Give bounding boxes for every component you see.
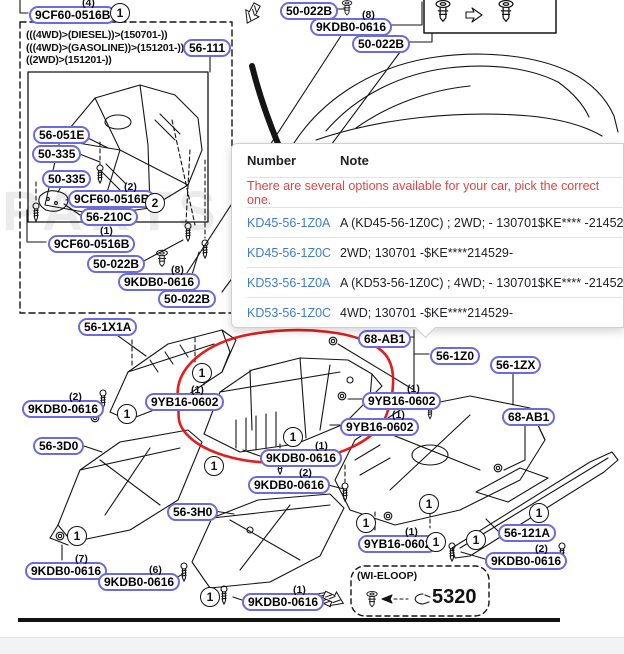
bottom-border-line bbox=[18, 618, 560, 622]
callout-number: 1 bbox=[426, 532, 446, 552]
callout-number: 1 bbox=[192, 363, 212, 383]
part-label[interactable]: 56-1ZX bbox=[490, 356, 541, 374]
part-qty: (8) bbox=[362, 9, 375, 21]
part-qty: (8) bbox=[171, 264, 184, 276]
car-outline-drawing bbox=[252, 54, 618, 146]
part-label[interactable]: 9CF60-0516B bbox=[48, 235, 135, 253]
part-note: A (KD45-56-1Z0C) ; 2WD; - 130701$KE**** … bbox=[340, 216, 623, 230]
screw-icon bbox=[33, 203, 39, 221]
bolt-icon bbox=[384, 512, 392, 520]
part-qty: (1) bbox=[392, 409, 405, 421]
popup-option-row: KD45-56-1Z0C 2WD; 130701 -$KE****214529- bbox=[247, 237, 623, 267]
part-qty: (7) bbox=[75, 553, 88, 565]
part-number-link[interactable]: KD53-56-1Z0A bbox=[247, 276, 330, 290]
popup-warning-row: There are several options available for … bbox=[247, 177, 623, 207]
part-number-link[interactable]: KD45-56-1Z0C bbox=[247, 246, 331, 260]
part-label[interactable]: 50-022B bbox=[87, 255, 145, 273]
callout-number: 2 bbox=[145, 193, 165, 213]
part-label[interactable]: 9KDB0-0616 bbox=[485, 552, 567, 570]
part-qty: (1) bbox=[100, 225, 113, 237]
bolt-icon bbox=[494, 464, 502, 472]
part-qty: (2) bbox=[299, 467, 312, 479]
hatched-arrow-icon bbox=[321, 588, 346, 610]
part-note: 2WD; 130701 -$KE****214529- bbox=[340, 246, 623, 260]
screw-icon bbox=[185, 223, 191, 241]
screw-icon bbox=[221, 586, 227, 604]
callout-number: 1 bbox=[466, 530, 486, 550]
part-label[interactable]: 9KDB0-0616 bbox=[310, 18, 392, 36]
part-label[interactable]: 56-1Z0 bbox=[430, 347, 480, 365]
part-label[interactable]: 56-121A bbox=[498, 524, 556, 542]
variant-conditions: (((4WD)>(DIESEL))>(150701-)) (((4WD)>(GA… bbox=[26, 29, 184, 67]
part-number-link[interactable]: KD53-56-1Z0C bbox=[247, 306, 331, 320]
part-qty: (1) bbox=[191, 384, 204, 396]
clip-icon bbox=[499, 1, 513, 22]
column-header-note: Note bbox=[340, 153, 623, 168]
clip-icon bbox=[342, 1, 352, 15]
part-qty: (2) bbox=[124, 181, 137, 193]
wi-eloop-code: 5320 bbox=[432, 586, 477, 609]
part-label[interactable]: 9CF60-0516B bbox=[68, 190, 155, 208]
screw-icon bbox=[97, 165, 103, 183]
part-qty: (2) bbox=[69, 391, 82, 403]
part-label[interactable]: 50-335 bbox=[32, 145, 81, 163]
part-label[interactable]: 56-051E bbox=[33, 126, 90, 144]
part-label[interactable]: 56-111 bbox=[183, 39, 231, 57]
clip-icon bbox=[367, 591, 377, 606]
parts-diagram-page: PARTS bbox=[0, 0, 624, 653]
part-label[interactable]: 9KDB0-0616 bbox=[242, 593, 324, 611]
popup-option-row: KD53-56-1Z0C 4WD; 130701 -$KE****214529- bbox=[247, 297, 623, 327]
part-note: A (KD53-56-1Z0C) ; 4WD; - 130701$KE**** … bbox=[340, 276, 623, 290]
part-label[interactable]: 68-AB1 bbox=[358, 330, 411, 348]
part-label[interactable]: 9YB16-0602 bbox=[145, 393, 224, 411]
bolt-icon bbox=[338, 392, 346, 400]
part-label[interactable]: 56-210C bbox=[80, 208, 138, 226]
clip-icon bbox=[436, 1, 450, 22]
bolt-icon bbox=[329, 337, 337, 345]
callout-number: 1 bbox=[283, 427, 303, 447]
variant-line: ((2WD)>(151201-)) bbox=[26, 54, 184, 67]
callout-number: 1 bbox=[110, 3, 130, 23]
part-qty: (1) bbox=[405, 526, 418, 538]
part-label[interactable]: 9KDB0-0616 bbox=[25, 562, 107, 580]
column-header-number: Number bbox=[247, 153, 340, 168]
bolt-icon bbox=[56, 532, 64, 540]
part-label[interactable]: 9KDB0-0616 bbox=[118, 273, 200, 291]
part-label[interactable]: 9KDB0-0616 bbox=[98, 573, 180, 591]
part-note: 4WD; 130701 -$KE****214529- bbox=[340, 306, 623, 320]
callout-number: 1 bbox=[419, 494, 439, 514]
part-label[interactable]: 9CF60-0516B bbox=[29, 6, 116, 24]
part-qty: (1) bbox=[407, 383, 420, 395]
screw-icon bbox=[449, 543, 455, 561]
popup-option-row: KD45-56-1Z0A A (KD45-56-1Z0C) ; 2WD; - 1… bbox=[247, 207, 623, 237]
callout-number: 1 bbox=[529, 503, 549, 523]
screw-icon bbox=[181, 563, 187, 581]
part-label[interactable]: 9YB16-0602 bbox=[362, 392, 441, 410]
part-label[interactable]: 9KDB0-0616 bbox=[260, 449, 342, 467]
wi-eloop-title: (WI-ELOOP) bbox=[357, 570, 417, 582]
callout-number: 1 bbox=[117, 404, 137, 424]
part-label[interactable]: 50-022B bbox=[158, 290, 216, 308]
warning-text: There are several options available for … bbox=[247, 179, 623, 207]
part-label[interactable]: 56-1X1A bbox=[78, 318, 137, 336]
part-number-link[interactable]: KD45-56-1Z0A bbox=[247, 216, 330, 230]
callout-number: 1 bbox=[200, 587, 220, 607]
part-label[interactable]: 56-3D0 bbox=[33, 437, 84, 455]
part-qty: (4) bbox=[82, 0, 95, 9]
popup-header-row: Number Note bbox=[247, 144, 623, 177]
part-qty: (2) bbox=[535, 543, 548, 555]
variant-line: (((4WD)>(DIESEL))>(150701-)) bbox=[26, 29, 184, 42]
part-label[interactable]: 9KDB0-0616 bbox=[248, 476, 330, 494]
part-qty: (6) bbox=[149, 564, 162, 576]
part-qty: (1) bbox=[293, 584, 306, 596]
callout-number: 1 bbox=[356, 513, 376, 533]
part-label[interactable]: 56-3H0 bbox=[167, 503, 218, 521]
callout-number: 1 bbox=[204, 456, 224, 476]
popup-option-row: KD53-56-1Z0A A (KD53-56-1Z0C) ; 4WD; - 1… bbox=[247, 267, 623, 297]
screw-icon bbox=[342, 483, 348, 501]
page-footer-strip bbox=[0, 637, 624, 654]
variant-line: (((4WD)>(GASOLINE))>(151201-)) bbox=[26, 42, 184, 55]
part-label[interactable]: 50-335 bbox=[42, 170, 91, 188]
callout-number: 1 bbox=[67, 526, 87, 546]
part-label[interactable]: 68-AB1 bbox=[502, 408, 555, 426]
part-label[interactable]: 9KDB0-0616 bbox=[22, 400, 104, 418]
part-label[interactable]: 9YB16-0602 bbox=[340, 418, 419, 436]
hatched-arrow-icon bbox=[241, 1, 264, 27]
options-popup: Number Note There are several options av… bbox=[231, 143, 624, 328]
part-qty: (1) bbox=[315, 440, 328, 452]
part-label[interactable]: 50-022B bbox=[352, 35, 410, 53]
